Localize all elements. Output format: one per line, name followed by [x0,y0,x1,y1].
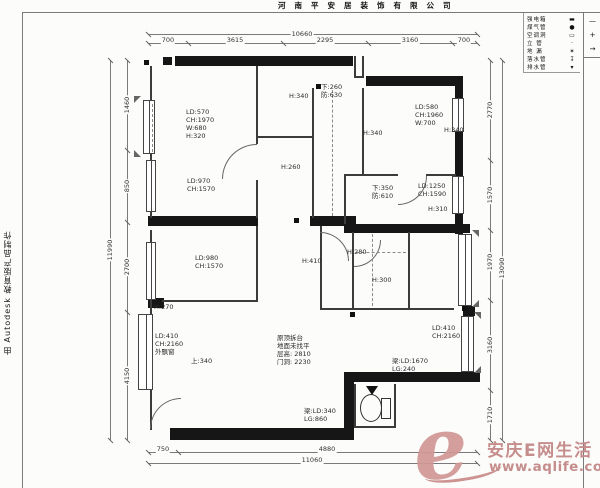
wall-thin [312,88,314,218]
plan-annotation: 下:260 防:630 [321,83,342,99]
corner-marks: — + → [587,14,598,56]
legend-row: 空调洞▭ [527,31,577,39]
wall [148,216,258,226]
wall-thin [258,136,312,138]
frame-top-line [22,12,600,13]
window-flap [472,300,479,307]
dim-label: 750 [156,445,170,453]
dim-label: 1570 [486,186,494,205]
plan-annotation: H:410 [302,257,321,265]
wall-thin [150,212,152,218]
plan-annotation: LD:980 CH:1570 [195,254,223,270]
window [146,242,156,300]
plan-annotation: 原顶拆台 地面未找平 层高: 2810 门洞: 2230 [277,334,311,367]
toilet-tank-icon [381,398,391,419]
service-box [350,312,355,317]
legend-label: 强电箱 [527,15,547,23]
ac-hole-icon: ▭ [567,32,577,39]
frame-right-line [583,12,584,488]
door-arc [222,144,257,179]
wall-thin [362,56,364,78]
dim-label: 1710 [486,406,494,425]
wall [344,372,354,440]
dim-label: 700 [161,36,175,44]
wall [455,130,463,176]
dim-label: 2770 [486,101,494,120]
plan-annotation: H:340 [363,129,382,137]
downpipe-icon: ↧ [567,56,577,63]
wall-thin [256,66,258,144]
wall-thin [354,56,356,78]
dim-label: 11990 [106,239,114,262]
corner-mark: + [587,28,598,42]
legend-row: 排水管▾ [527,63,577,71]
plan-annotation: LD:410 CH:2160 [432,324,460,340]
wall [344,372,480,382]
dim-label: 4150 [123,367,131,386]
dim-label: 11060 [301,456,324,464]
wall-thin [408,232,410,310]
window-flap [474,366,481,373]
dim-label: 13090 [498,257,506,280]
wall [366,76,463,86]
wall-thin [150,66,152,102]
frame-left-line [22,12,23,488]
dim-label: 10660 [291,30,314,38]
plan-annotation: H:280 [347,248,366,256]
wall [352,224,470,233]
entry-door-arc [150,398,181,429]
wall-thin [322,308,454,310]
alcove-wall [354,384,356,428]
dim-label: 4880 [318,445,337,453]
wall [163,57,172,65]
service-box [294,218,299,223]
dim-label: 2295 [316,36,335,44]
dim-label: 1460 [123,96,131,115]
wall-thin [256,226,258,300]
dim-label: 850 [123,179,131,193]
plan-annotation: H:310 [428,205,447,213]
toilet-icon [360,394,382,422]
corner-mark: → [587,42,598,56]
dim-label: 3160 [401,36,420,44]
dim-label: 700 [457,36,471,44]
wall-thin [344,176,346,224]
legend-row: 地 漏✶ [527,47,577,55]
frame-corner-line [583,57,600,58]
plan-annotation: LD:410 CH:2160 外飘窗 [155,332,183,356]
window [146,160,156,212]
dashed-line [332,90,333,216]
wall-thin [150,230,152,242]
legend-row: 落水管↧ [527,55,577,63]
legend-row: 煤气管● [527,23,577,31]
service-box [144,60,149,65]
marker-triangle-icon [366,386,378,395]
plan-annotation: LD:580 CH:1960 W:700 [415,103,443,127]
drain-pipe-icon: ▾ [567,64,577,71]
dim-label: 3160 [486,336,494,355]
wall-thin [256,180,258,218]
window-flap [134,150,141,157]
power-box-icon: ▬ [567,16,577,23]
riser-pipe-icon: · [567,40,577,47]
dim-label: 3615 [226,36,245,44]
plan-annotation: 梁:LD:340 LG:860 [304,407,336,423]
plan-annotation: 下:350 防:610 [372,184,393,200]
legend-label: 排水管 [527,63,547,71]
wall-thin [354,76,364,78]
plan-annotation: H:340 [444,126,463,134]
wall [455,76,463,100]
legend-label: 空调洞 [527,31,547,39]
sheet-title: 河南平安居装饰有限公司 [278,0,460,11]
window [461,316,474,372]
bay-window [138,314,153,390]
plan-annotation: LD:1250 CH:1590 [418,182,446,198]
dim-line [502,60,503,440]
alcove-wall [394,384,396,428]
dim-label: 2700 [123,258,131,277]
wall-thin [162,300,258,302]
plan-annotation: H:270 [154,303,173,311]
watermark-site-name: 安庆E网生活 [487,436,593,461]
legend-label: 煤气管 [527,23,547,31]
wall [170,428,348,440]
autodesk-credit: 由 Autodesk 教育版产品制作 [2,140,13,355]
window-flap [472,230,479,237]
plan-annotation: 梁:LD:1670 LG:240 [392,357,428,373]
dashed-line [372,234,373,306]
plan-annotation: 上:340 [191,357,212,365]
plan-annotation: H:340 [289,92,308,100]
dim-line [148,43,478,44]
window-flap [134,96,141,103]
cad-floorplan-sheet: 河南平安居装饰有限公司 由 Autodesk 教育版产品制作 强电箱▬ 煤气管●… [0,0,600,488]
service-box [462,306,467,311]
alcove-wall [354,426,396,428]
legend: 强电箱▬ 煤气管● 空调洞▭ 立 管· 地 漏✶ 落水管↧ 排水管▾ [523,13,580,73]
wall-thin [344,174,398,176]
corner-mark: — [587,14,598,28]
floor-drain-icon: ✶ [567,48,577,55]
plan-annotation: H:300 [372,276,391,284]
legend-label: 落水管 [527,55,547,63]
dashed-line [152,104,153,152]
legend-row: 立 管· [527,39,577,47]
door-arc [320,232,349,261]
window-flap [474,312,481,319]
bay-window [143,100,155,154]
wall [175,56,353,66]
dim-label: 1970 [486,253,494,272]
legend-label: 地 漏 [527,47,543,55]
watermark-site-url: www.aqlife.com [489,459,600,475]
bay-window [458,234,472,306]
plan-annotation: LD:970 CH:1570 [187,177,215,193]
plan-annotation: LD:570 CH:1970 W:680 H:320 [186,108,214,141]
window [452,176,464,214]
plan-annotation: H:260 [281,163,300,171]
legend-label: 立 管 [527,39,543,47]
gas-pipe-icon: ● [567,24,577,31]
legend-row: 强电箱▬ [527,15,577,23]
